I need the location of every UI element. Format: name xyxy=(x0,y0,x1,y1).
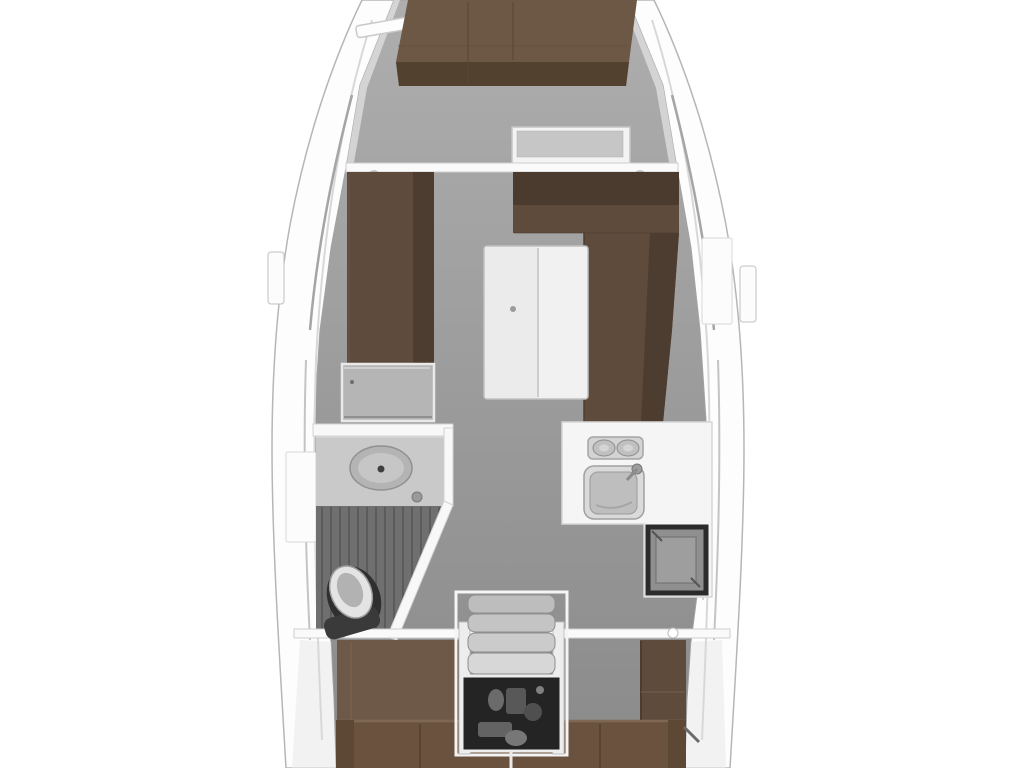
aft-cabin-starboard-cabinet xyxy=(640,640,686,727)
companionway-steps xyxy=(468,595,555,674)
chart-table-cabinet xyxy=(342,364,434,421)
side-locker-panel-port xyxy=(286,452,316,542)
hull-chainplate-notch-starboard xyxy=(740,266,756,322)
vberth-forward-cabin xyxy=(396,0,637,86)
galley-fridge xyxy=(648,527,706,593)
forward-cabin-seat xyxy=(512,127,630,168)
aft-cabin-port-berth-wing xyxy=(337,640,459,725)
saloon-settee-port xyxy=(347,172,434,366)
head-vanity-sink xyxy=(316,436,445,506)
yacht-floorplan-page xyxy=(0,0,1024,768)
saloon-folding-table xyxy=(484,246,588,399)
yacht-floorplan-svg xyxy=(0,0,1024,768)
hull-chainplate-notch-port xyxy=(268,252,284,304)
galley-stove xyxy=(588,437,643,459)
galley-sink xyxy=(584,464,644,519)
